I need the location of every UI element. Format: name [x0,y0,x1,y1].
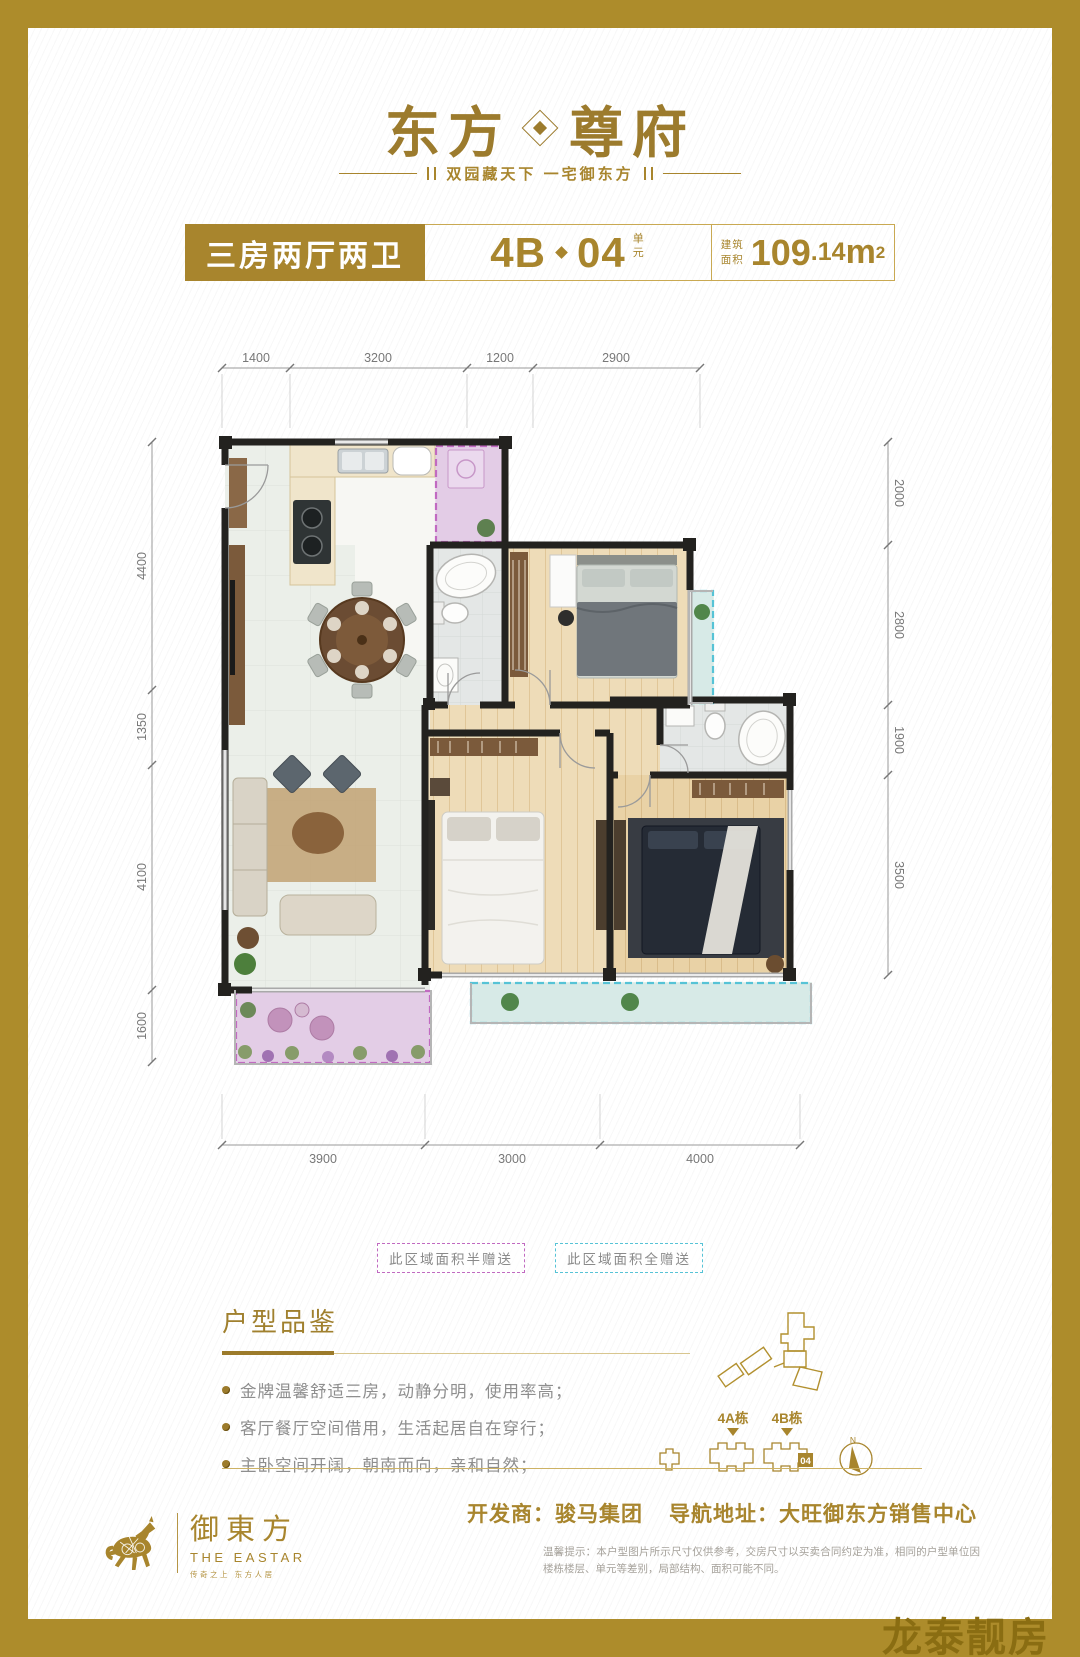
dim-label: 4100 [135,863,149,891]
logo-text-right: 尊府 [569,88,695,168]
brand-separator [177,1513,178,1573]
dim-label: 2000 [892,479,906,507]
shoe-cabinet-icon [229,458,247,528]
legend-half-gift: 此区域面积半赠送 [377,1243,525,1273]
building-label-4b: 4B栋 [772,1410,803,1426]
bullet-text: 客厅餐厅空间借用，生活起居自在穿行； [240,1415,555,1439]
dim-label: 1200 [486,351,514,365]
dim-label: 4400 [135,552,149,580]
unit-title-bar: 三房两厅两卫 4B 04 单元 建筑 面积 109.14m2 [185,224,895,281]
poster-page: 龙泰靓房 东方 尊府 双园藏天下 一宅御东方 三房两厅两卫 4B 04 单元 [0,0,1080,1657]
watermark: 龙泰靓房 [882,1618,1050,1657]
site-diagram: 4A栋 4B栋 04 N [560,1255,980,1490]
area-unit-sup: 2 [876,243,885,263]
bullet-text: 金牌温馨舒适三房，动静分明，使用率高； [240,1378,573,1402]
dim-label: 1600 [135,1012,149,1040]
dim-label: 4000 [686,1152,714,1166]
floor-plan: 1400 3200 1200 2900 4400 1350 4100 1600 … [130,350,910,1172]
tagline-bars-right-icon [644,167,653,180]
brand-block: 御東方 THE EASTAR 传奇之上 东方人居 [95,1506,306,1580]
layout-type-badge: 三房两厅两卫 [185,224,425,281]
area-value-int: 109 [751,232,811,274]
area-label-bottom: 面积 [721,254,744,266]
area-labels: 建筑 面积 [721,238,744,266]
area-value-dec: .14 [811,238,846,267]
unit-number-box: 4B 04 单元 [425,225,711,280]
bullet-text: 主卧空间开阔，朝南而向，亲和自然； [240,1452,538,1476]
disclaimer-text: 温馨提示：本户型图片所示尺寸仅供参考，交房尺寸以买卖合同约定为准，相同的户型单位… [543,1544,980,1578]
poster-content: 东方 尊府 双园藏天下 一宅御东方 三房两厅两卫 4B 04 单元 [0,0,1080,1657]
diamond-separator-icon [555,246,568,259]
area-unit: m [846,233,876,272]
dim-label: 1900 [892,726,906,754]
frame-border-right [1052,0,1080,1657]
horse-logo-icon [95,1511,167,1575]
bullet-dot-icon [222,1386,230,1394]
plant-icon [234,953,256,975]
pointer-triangle-icon [781,1428,793,1436]
site-cluster-outline-icon [718,1313,822,1390]
developer-line: 开发商：骏马集团导航地址：大旺御东方销售中心 [467,1498,977,1528]
brand-slogan: 传奇之上 东方人居 [190,1569,306,1580]
dim-label: 2900 [602,351,630,365]
dim-label: 3900 [309,1152,337,1166]
dim-label: 3200 [364,351,392,365]
frame-border-top [0,0,1080,28]
unit-location-badge: 04 [798,1453,813,1467]
dim-label: 1350 [135,713,149,741]
tagline-row: 双园藏天下 一宅御东方 [0,163,1080,184]
tagline-rule-right [663,173,741,174]
building-label-4a: 4A栋 [718,1410,749,1426]
frame-border-left [0,0,28,1657]
bullet-dot-icon [222,1423,230,1431]
dim-label: 3000 [498,1152,526,1166]
logo-diamond-icon [522,110,559,147]
logo-text-left: 东方 [385,88,511,168]
compass-north-label: N [850,1435,856,1445]
footer-divider [222,1468,922,1469]
tagline: 双园藏天下 一宅御东方 [446,163,633,184]
tagline-bars-left-icon [427,167,436,180]
brand-name-en: THE EASTAR [190,1550,306,1565]
developer-info: 开发商：骏马集团 [467,1503,643,1526]
brand-text: 御東方 THE EASTAR 传奇之上 东方人居 [190,1506,306,1580]
tv-icon [230,580,235,675]
dim-label: 2800 [892,611,906,639]
area-label-top: 建筑 [721,239,744,251]
unit-info-box: 4B 04 单元 建筑 面积 109.14m2 [425,224,895,281]
unit-prefix: 4B [490,229,546,277]
bullet-dot-icon [222,1460,230,1468]
unit-number: 04 [577,229,626,277]
dim-label: 1400 [242,351,270,365]
area-box: 建筑 面积 109.14m2 [711,225,894,280]
project-logo: 东方 尊府 [0,88,1080,168]
dim-label: 3500 [892,861,906,889]
unit-suffix: 单元 [633,233,646,259]
brand-name-cn: 御東方 [190,1506,306,1548]
address-info: 导航地址：大旺御东方销售中心 [669,1503,977,1526]
unit-badge-text: 04 [800,1456,811,1467]
building-footprints-icon [660,1443,807,1471]
tagline-rule-left [339,173,417,174]
pointer-triangle-icon [727,1428,739,1436]
compass-icon: N [840,1435,872,1475]
